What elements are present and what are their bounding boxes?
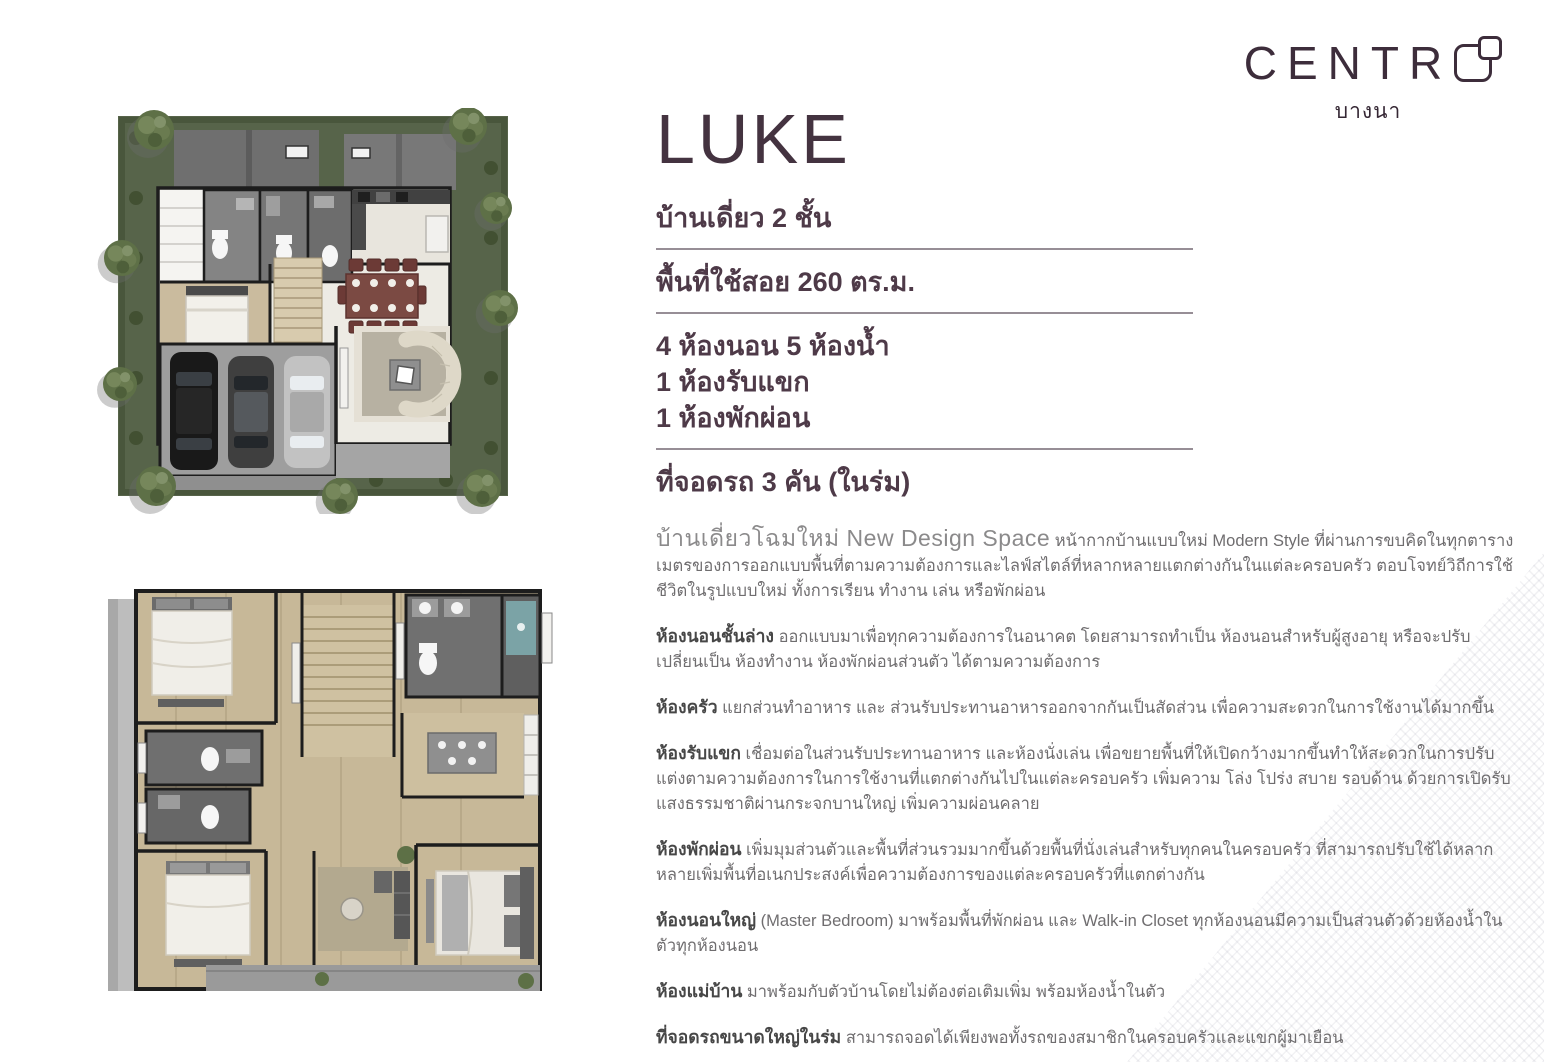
brand-logo-o-mark — [1454, 44, 1492, 82]
details-column: LUKE บ้านเดี่ยว 2 ชั้น พื้นที่ใช้สอย 260… — [656, 104, 1516, 1051]
intro-paragraph: บ้านเดี่ยวโฉมใหม่ New Design Space หน้าก… — [656, 526, 1516, 604]
ground-floor-plan-image — [96, 108, 528, 514]
brand-logo-letters: CENTR — [1244, 40, 1452, 86]
separator-line — [656, 448, 1193, 450]
model-name-title: LUKE — [656, 104, 1516, 174]
second-floor-plan — [106, 583, 574, 1031]
paragraph-covered-parking: ที่จอดรถขนาดใหญ่ในร่ม สามารถจอดได้เพียงพ… — [656, 1025, 1516, 1051]
paragraph-kitchen: ห้องครัว แยกส่วนทำอาหาร และ ส่วนรับประทา… — [656, 695, 1516, 721]
spec-parking: ที่จอดรถ 3 คัน (ในร่ม) — [656, 464, 1516, 500]
spec-living-room: 1 ห้องรับแขก — [656, 364, 1516, 400]
paragraph-relax-room: ห้องพักผ่อน เพิ่มมุมส่วนตัวและพื้นที่ส่ว… — [656, 837, 1516, 888]
separator-line — [656, 312, 1193, 314]
paragraph-master-bedroom: ห้องนอนใหญ่ (Master Bedroom) มาพร้อมพื้น… — [656, 908, 1516, 959]
spec-house-type: บ้านเดี่ยว 2 ชั้น — [656, 200, 1516, 236]
paragraph-maid-room: ห้องแม่บ้าน มาพร้อมกับตัวบ้านโดยไม่ต้องต… — [656, 979, 1516, 1005]
second-floor-plan-image — [106, 583, 574, 1031]
intro-lead: บ้านเดี่ยวโฉมใหม่ New Design Space — [656, 525, 1050, 551]
separator-line — [656, 248, 1193, 250]
spec-usable-area: พื้นที่ใช้สอย 260 ตร.ม. — [656, 264, 1516, 300]
brand-logo-row: CENTR — [1243, 40, 1493, 86]
paragraph-bedroom-ground: ห้องนอนชั้นล่าง ออกแบบมาเพื่อทุกความต้อง… — [656, 624, 1516, 675]
ground-floor-plan — [96, 108, 528, 514]
spec-bedrooms-bathrooms: 4 ห้องนอน 5 ห้องน้ำ — [656, 328, 1516, 364]
brochure-page: CENTR บางนา LUKE บ้านเดี่ยว 2 ชั้น พื้นท… — [0, 0, 1544, 1062]
spec-relax-room: 1 ห้องพักผ่อน — [656, 400, 1516, 436]
paragraph-living-room: ห้องรับแขก เชื่อมต่อในส่วนรับประทานอาหาร… — [656, 741, 1516, 817]
